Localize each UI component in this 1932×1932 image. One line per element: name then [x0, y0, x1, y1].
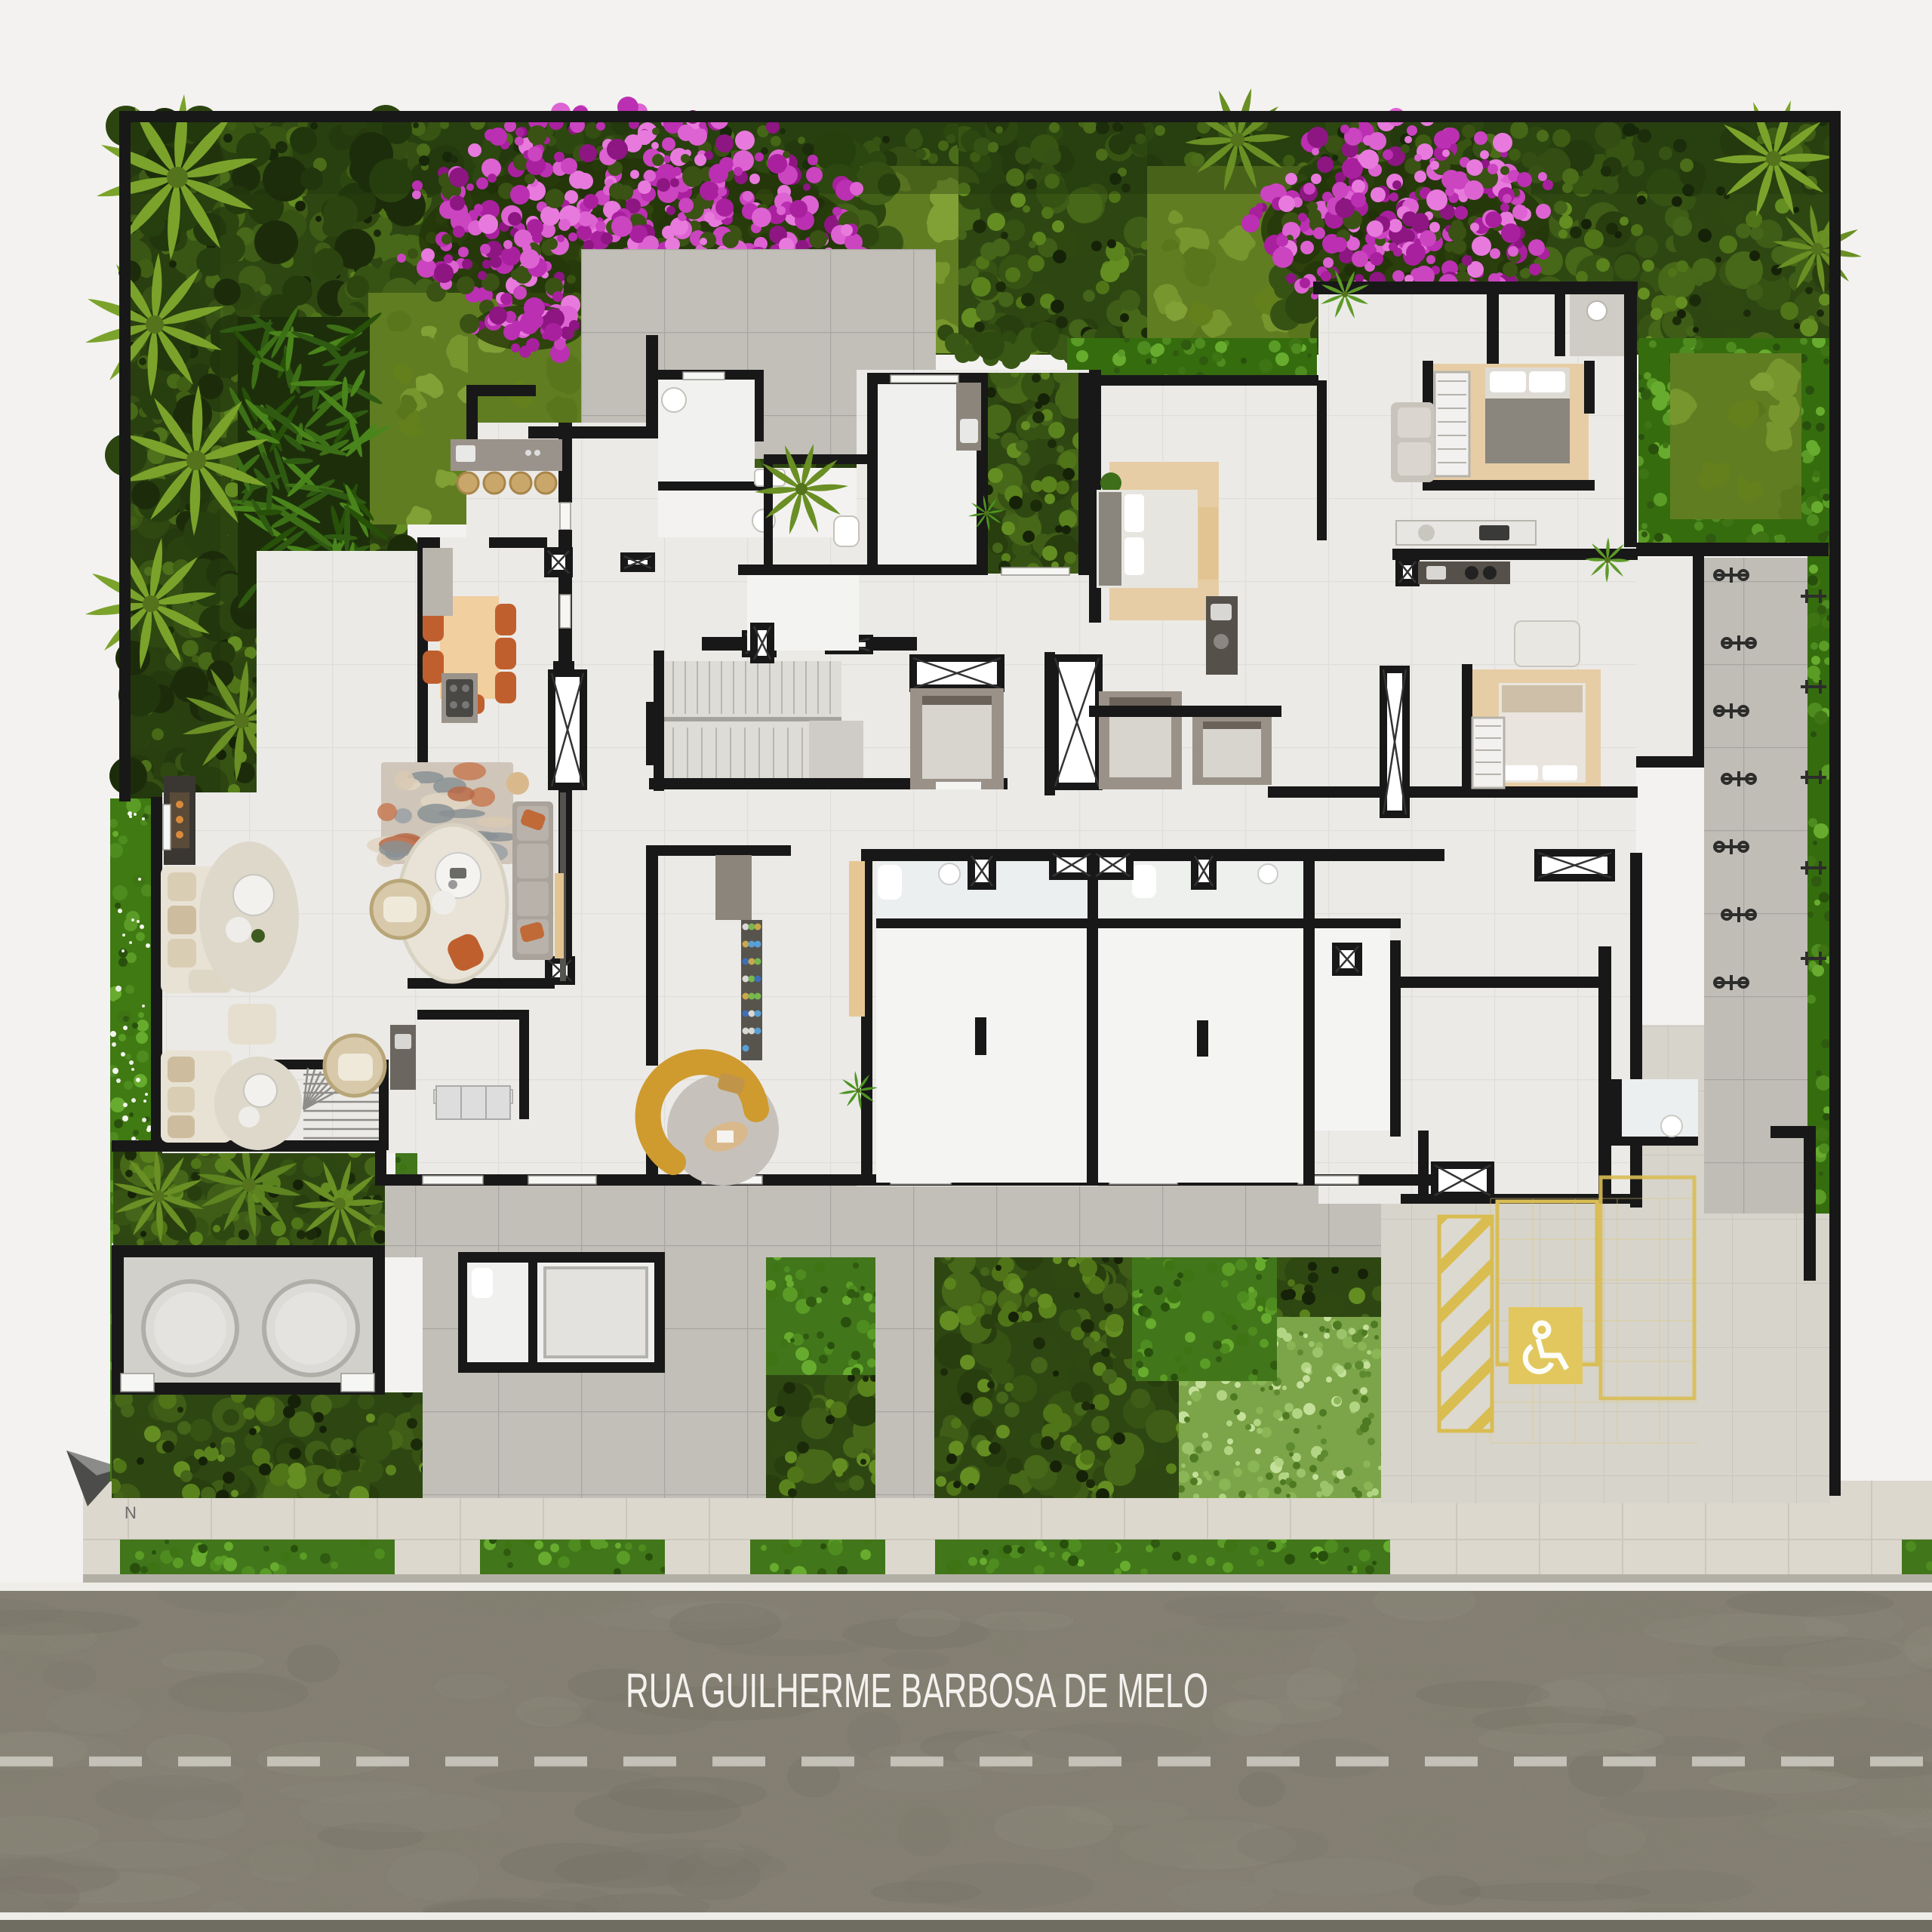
svg-text:N: N: [125, 1503, 137, 1522]
svg-text:RUA GUILHERME BARBOSA DE MELO: RUA GUILHERME BARBOSA DE MELO: [626, 1663, 1208, 1718]
